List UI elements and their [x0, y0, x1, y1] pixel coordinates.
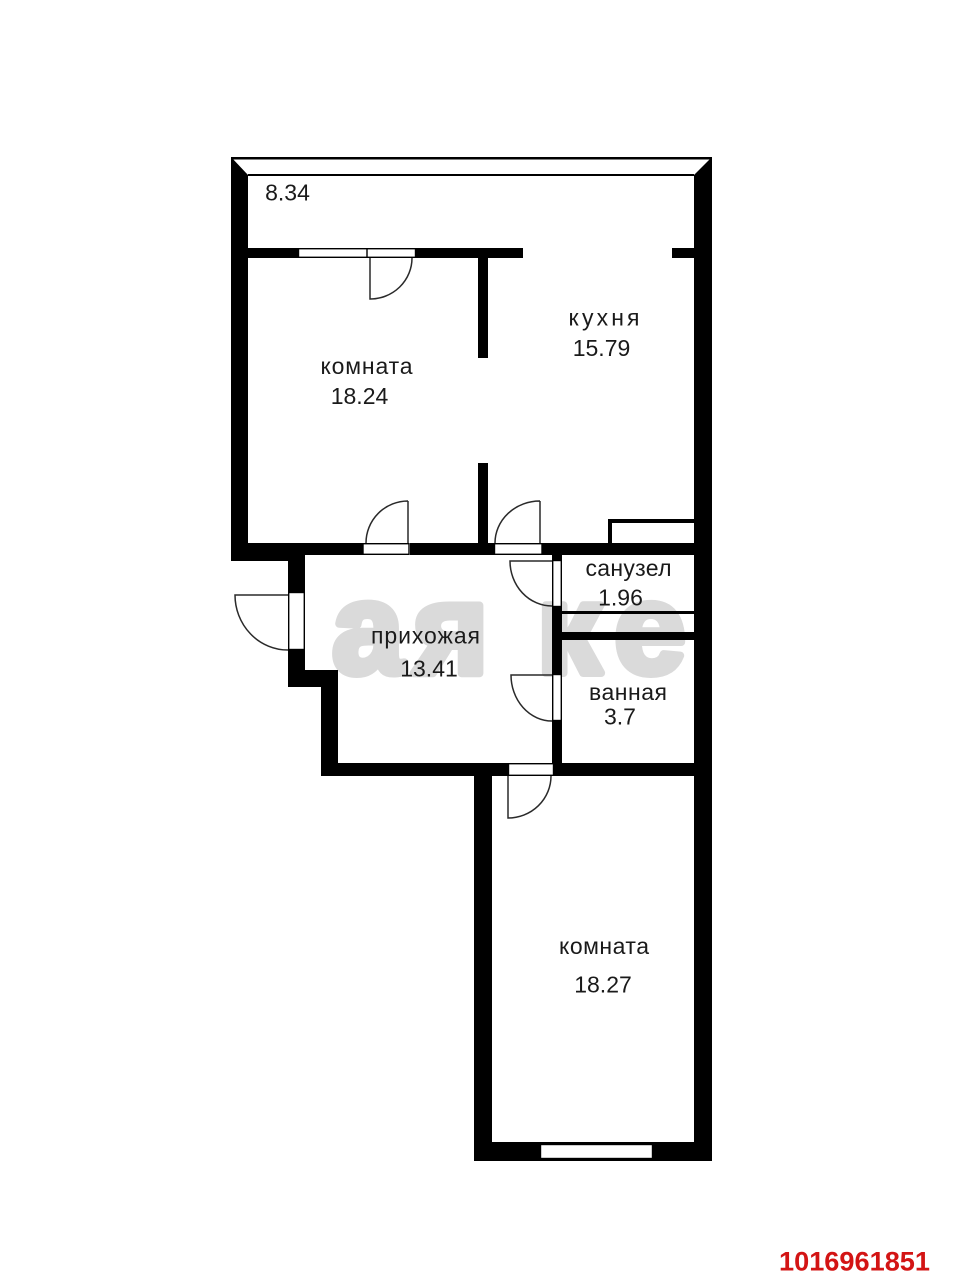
svg-text:15.79: 15.79 — [573, 335, 631, 361]
svg-text:комната: комната — [321, 353, 413, 379]
svg-text:ванная: ванная — [589, 679, 667, 705]
svg-text:прихожая: прихожая — [371, 623, 480, 649]
svg-text:санузел: санузел — [586, 555, 672, 581]
svg-text:18.24: 18.24 — [331, 383, 389, 409]
svg-text:1.96: 1.96 — [598, 585, 643, 611]
svg-text:3.7: 3.7 — [604, 704, 636, 730]
svg-text:18.27: 18.27 — [574, 972, 632, 998]
svg-text:8.34: 8.34 — [265, 180, 310, 206]
svg-text:1016961851: 1016961851 — [779, 1247, 930, 1277]
svg-text:13.41: 13.41 — [400, 656, 458, 682]
svg-text:комната: комната — [559, 933, 649, 959]
